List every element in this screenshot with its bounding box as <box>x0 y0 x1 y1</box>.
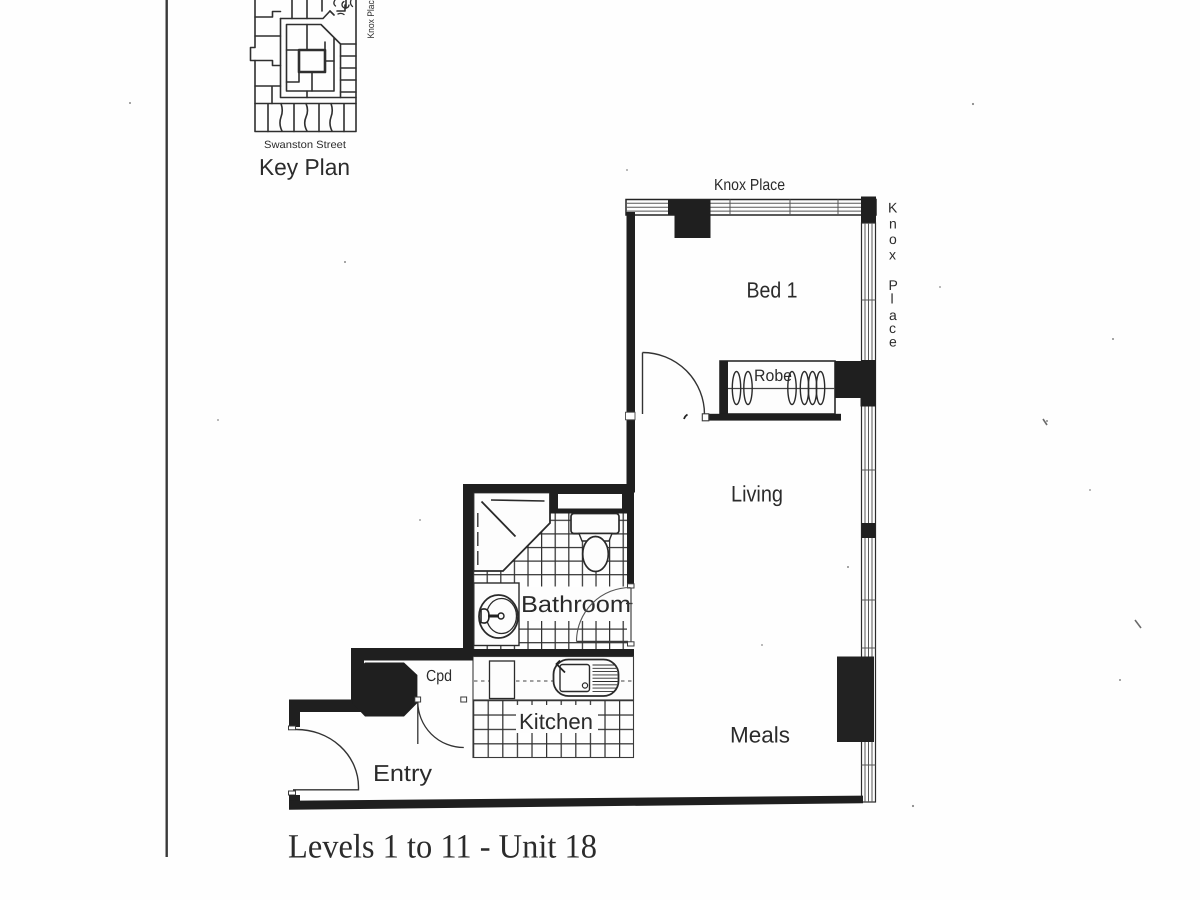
svg-text:Levels 1 to 11 - Unit 18: Levels 1 to 11 - Unit 18 <box>288 829 597 866</box>
svg-text:Knox Place: Knox Place <box>366 0 377 39</box>
svg-text:Swanston Street: Swanston Street <box>264 139 346 151</box>
svg-text:x: x <box>889 247 896 263</box>
svg-text:Bed 1: Bed 1 <box>747 278 798 303</box>
svg-text:n: n <box>889 216 897 232</box>
svg-text:l: l <box>891 291 894 307</box>
svg-text:K: K <box>888 200 898 216</box>
svg-text:Cpd: Cpd <box>426 668 452 685</box>
svg-text:o: o <box>889 231 897 247</box>
svg-text:Meals: Meals <box>730 723 790 748</box>
svg-text:Bathroom: Bathroom <box>521 591 631 617</box>
svg-text:Key Plan: Key Plan <box>259 154 350 180</box>
svg-text:Robe: Robe <box>754 367 792 385</box>
svg-text:Kitchen: Kitchen <box>519 709 593 734</box>
svg-text:Entry: Entry <box>373 760 433 786</box>
svg-text:Living: Living <box>731 482 783 507</box>
svg-text:e: e <box>889 334 897 350</box>
svg-text:Knox Place: Knox Place <box>714 177 785 194</box>
